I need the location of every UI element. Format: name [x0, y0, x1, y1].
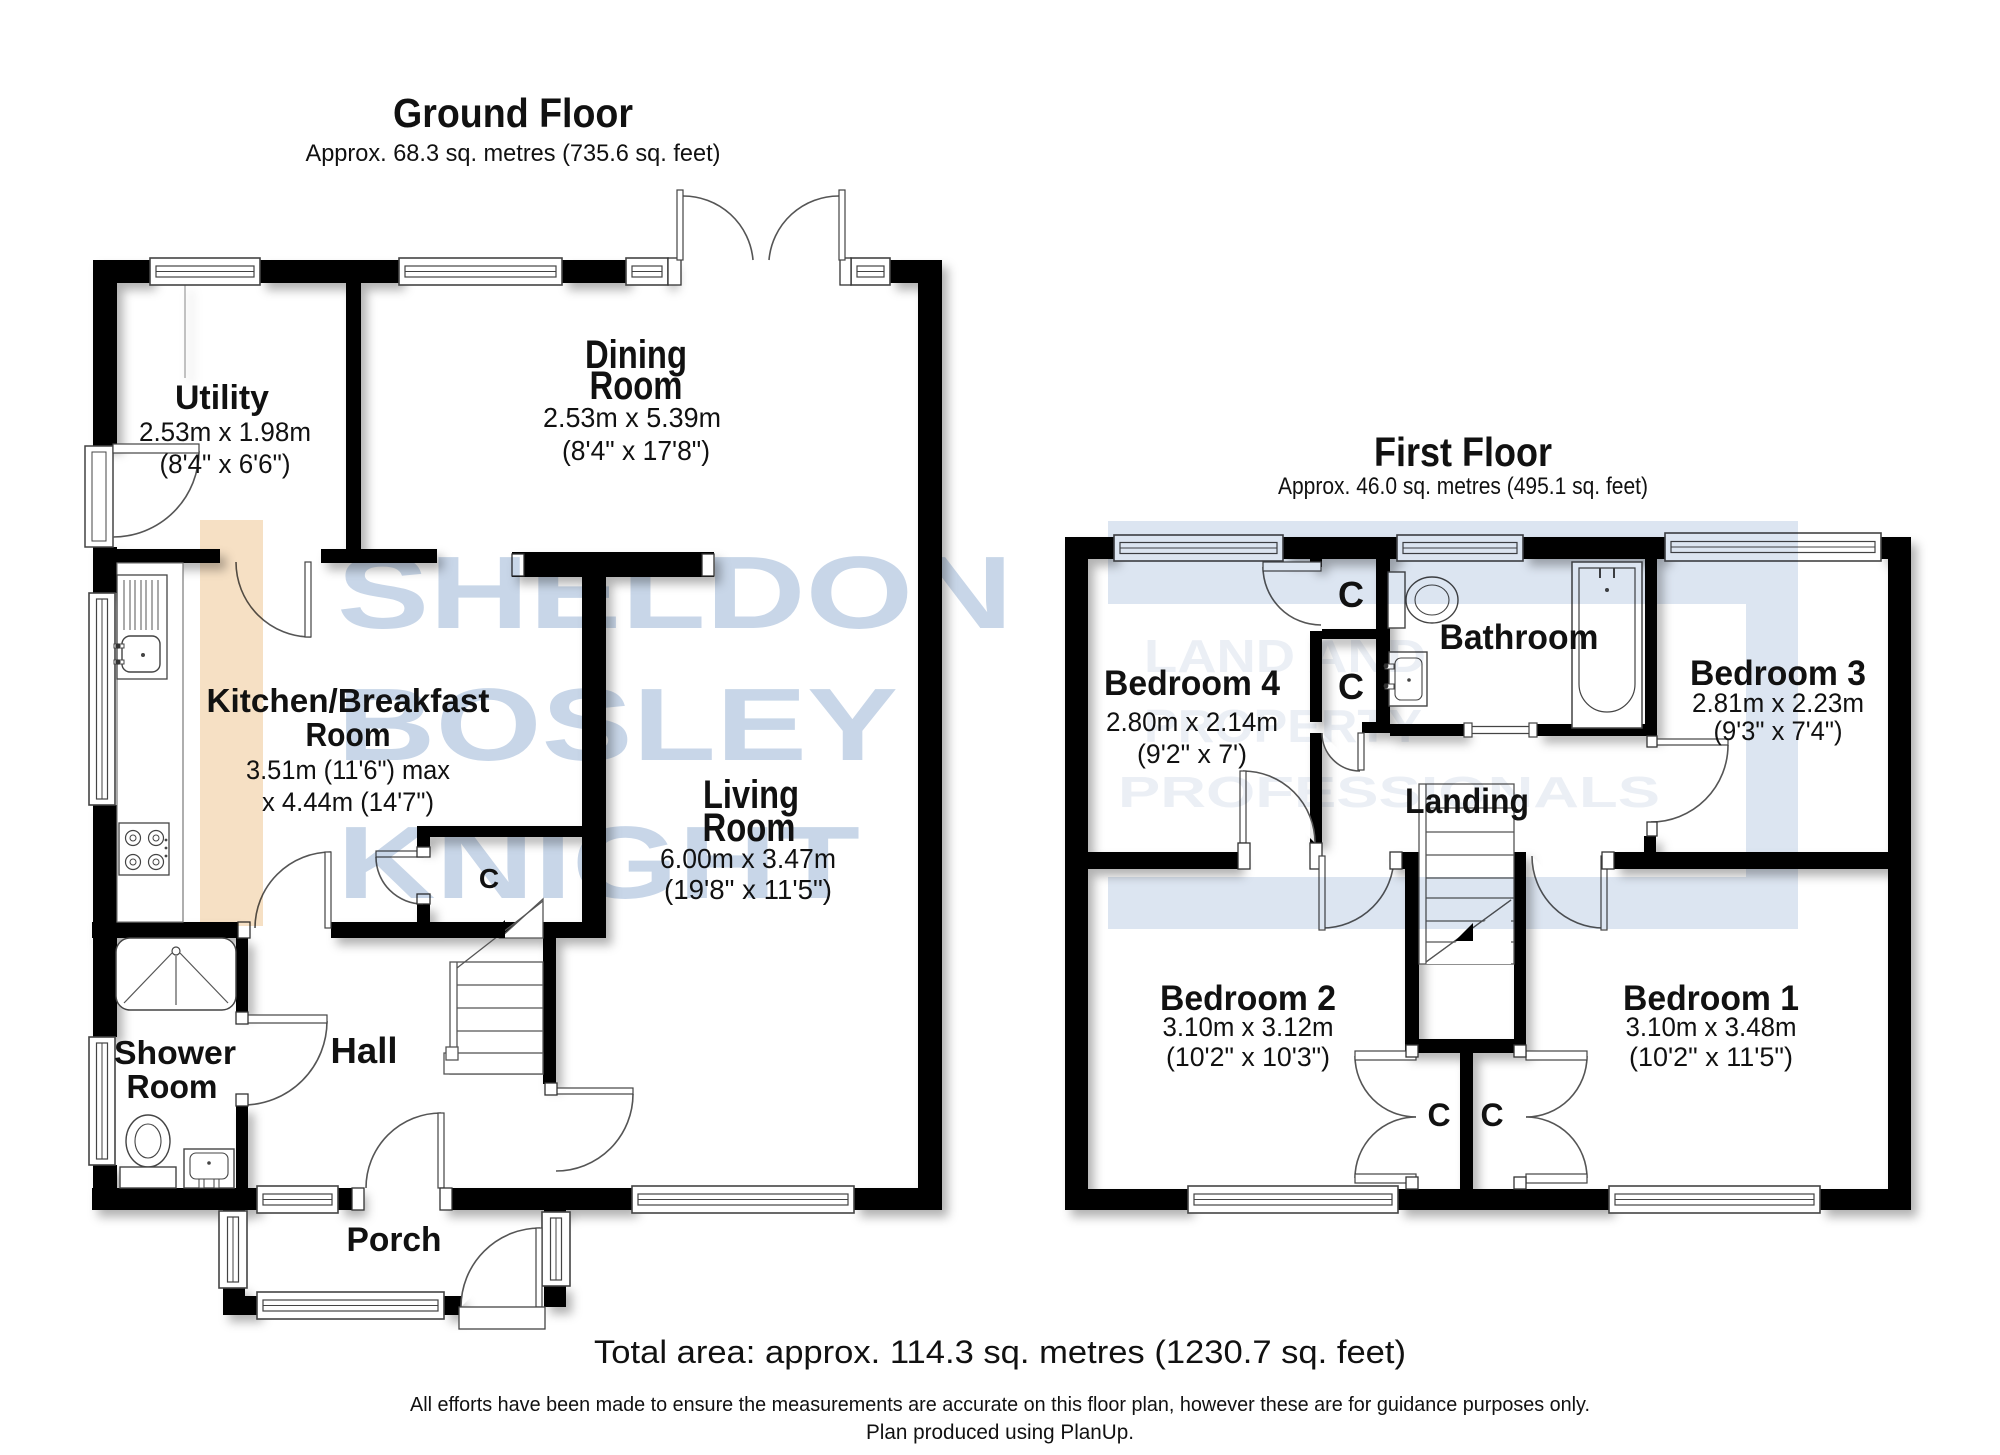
svg-text:2.53m x 5.39m: 2.53m x 5.39m — [543, 402, 721, 433]
svg-text:3.51m (11'6") max: 3.51m (11'6") max — [246, 755, 450, 785]
svg-text:6.00m x 3.47m: 6.00m x 3.47m — [660, 843, 836, 874]
svg-text:(10'2" x 11'5"): (10'2" x 11'5") — [1629, 1042, 1793, 1072]
svg-text:C: C — [1480, 1097, 1503, 1133]
svg-text:(8'4" x 6'6"): (8'4" x 6'6") — [160, 449, 291, 479]
svg-text:Room: Room — [306, 716, 391, 753]
svg-text:2.80m x 2.14m: 2.80m x 2.14m — [1106, 707, 1278, 737]
svg-text:C: C — [1338, 666, 1364, 707]
svg-text:Bathroom: Bathroom — [1440, 618, 1599, 657]
svg-text:Shower: Shower — [114, 1034, 236, 1071]
svg-text:Bedroom 4: Bedroom 4 — [1104, 664, 1281, 703]
svg-text:Kitchen/Breakfast: Kitchen/Breakfast — [207, 682, 490, 719]
svg-text:(19'8" x 11'5"): (19'8" x 11'5") — [664, 874, 832, 905]
svg-text:2.53m x 1.98m: 2.53m x 1.98m — [139, 417, 311, 447]
svg-text:Approx. 68.3 sq. metres (735.6: Approx. 68.3 sq. metres (735.6 sq. feet) — [306, 140, 721, 167]
svg-text:C: C — [1427, 1097, 1450, 1133]
svg-text:Ground Floor: Ground Floor — [393, 90, 633, 136]
svg-text:Porch: Porch — [347, 1221, 442, 1259]
svg-text:First Floor: First Floor — [1374, 429, 1552, 475]
svg-text:(9'2" x 7'): (9'2" x 7') — [1137, 739, 1247, 769]
svg-text:Utility: Utility — [175, 379, 269, 417]
svg-text:(8'4" x 17'8"): (8'4" x 17'8") — [562, 435, 710, 466]
svg-text:3.10m x 3.12m: 3.10m x 3.12m — [1163, 1012, 1334, 1042]
svg-text:Hall: Hall — [331, 1030, 398, 1071]
svg-text:Plan produced using PlanUp.: Plan produced using PlanUp. — [866, 1421, 1134, 1444]
svg-text:Total area: approx. 114.3 sq.: Total area: approx. 114.3 sq. metres (12… — [594, 1334, 1406, 1370]
svg-text:Room: Room — [127, 1068, 218, 1105]
svg-text:3.10m x 3.48m: 3.10m x 3.48m — [1626, 1012, 1797, 1042]
svg-text:x 4.44m (14'7"): x 4.44m (14'7") — [262, 787, 434, 817]
svg-text:Landing: Landing — [1405, 782, 1529, 821]
svg-text:(10'2" x 10'3"): (10'2" x 10'3") — [1166, 1042, 1330, 1072]
svg-text:SHELDON: SHELDON — [337, 535, 1013, 650]
svg-text:C: C — [479, 863, 499, 894]
svg-text:Approx. 46.0 sq. metres (495.1: Approx. 46.0 sq. metres (495.1 sq. feet) — [1278, 473, 1648, 500]
svg-text:2.81m x 2.23m: 2.81m x 2.23m — [1692, 688, 1864, 718]
svg-text:PROFESSIONALS: PROFESSIONALS — [1118, 768, 1660, 817]
svg-text:All efforts have been made to: All efforts have been made to ensure the… — [410, 1394, 1590, 1416]
svg-text:(9'3" x 7'4"): (9'3" x 7'4") — [1714, 716, 1843, 746]
svg-text:C: C — [1338, 574, 1364, 615]
